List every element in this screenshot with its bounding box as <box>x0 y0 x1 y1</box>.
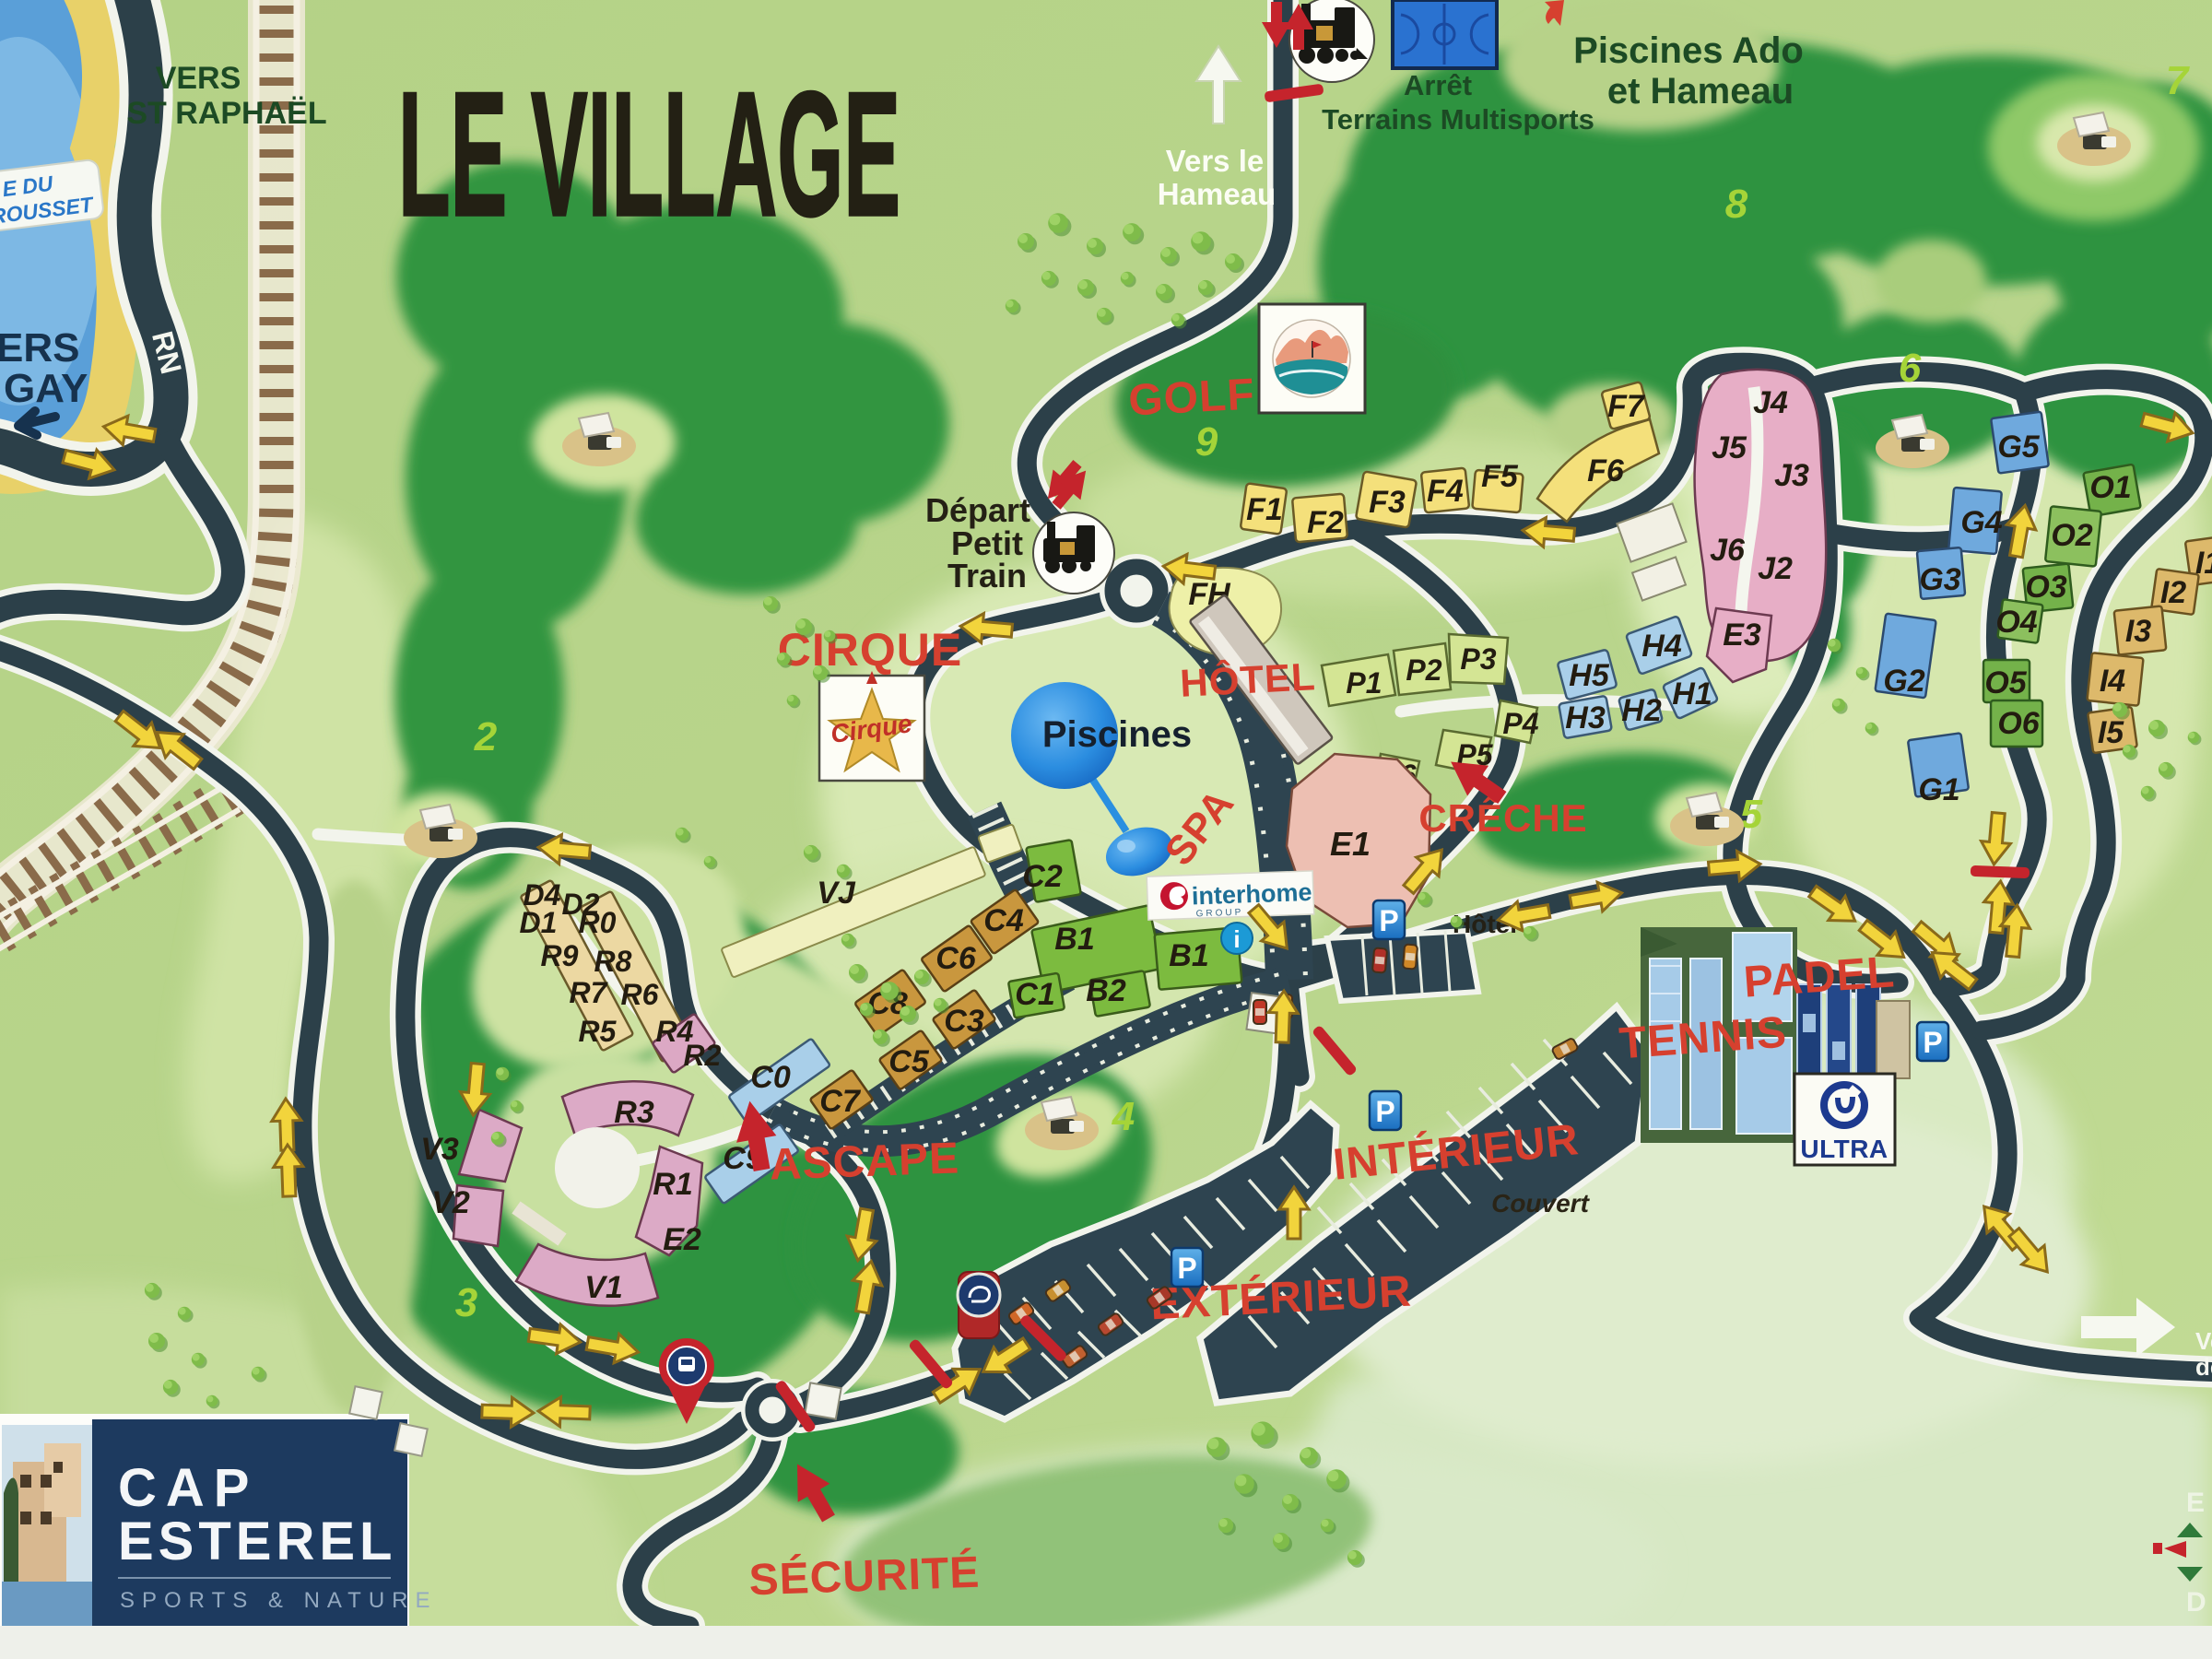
svg-text:ST RAPHAËL: ST RAPHAËL <box>126 96 326 131</box>
svg-text:O5: O5 <box>1984 665 2027 700</box>
svg-text:I5: I5 <box>2098 715 2124 750</box>
svg-text:interhome: interhome <box>1191 878 1312 911</box>
svg-text:SPORTS & NATURE: SPORTS & NATURE <box>120 1588 437 1613</box>
svg-text:Vers le: Vers le <box>1166 144 1264 178</box>
svg-text:C3: C3 <box>944 1004 984 1039</box>
svg-text:R1: R1 <box>653 1167 692 1202</box>
svg-text:P1: P1 <box>1346 666 1382 700</box>
svg-text:O6: O6 <box>1997 706 2040 741</box>
svg-text:O4: O4 <box>1995 605 2037 640</box>
svg-text:V2: V2 <box>431 1185 470 1220</box>
svg-text:G4: G4 <box>1960 505 2002 540</box>
svg-text:Piscines Ado: Piscines Ado <box>1573 30 1804 71</box>
svg-text:F2: F2 <box>1307 505 1344 540</box>
svg-text:C4: C4 <box>983 903 1024 938</box>
svg-text:O3: O3 <box>2025 570 2066 605</box>
svg-text:R9: R9 <box>541 939 579 972</box>
svg-text:ESTEREL: ESTEREL <box>118 1512 397 1571</box>
svg-text:G2: G2 <box>1883 664 1924 699</box>
svg-text:Ve: Ve <box>2195 1327 2212 1355</box>
svg-text:SÉCURITÉ: SÉCURITÉ <box>748 1547 981 1606</box>
svg-text:G5: G5 <box>1997 429 2040 465</box>
svg-text:I4: I4 <box>2100 664 2125 699</box>
svg-text:R7: R7 <box>570 976 609 1009</box>
svg-text:I3: I3 <box>2125 614 2151 649</box>
svg-text:2: 2 <box>474 714 498 759</box>
svg-text:Terrains Multisports: Terrains Multisports <box>1322 103 1594 135</box>
svg-text:VJ: VJ <box>817 876 856 911</box>
svg-text:H1: H1 <box>1672 677 1712 712</box>
svg-text:Départ: Départ <box>925 491 1030 529</box>
svg-text:H3: H3 <box>1565 700 1606 735</box>
svg-text:E2: E2 <box>663 1222 701 1257</box>
svg-text:F3: F3 <box>1369 485 1406 520</box>
svg-text:CRÊCHE: CRÊCHE <box>1418 795 1587 840</box>
svg-text:R0: R0 <box>579 906 617 939</box>
svg-text:VERS: VERS <box>156 61 241 96</box>
svg-text:J5: J5 <box>1712 430 1747 465</box>
svg-text:J3: J3 <box>1774 458 1809 493</box>
svg-text:et Hameau: et Hameau <box>1607 71 1794 112</box>
svg-text:R5: R5 <box>579 1015 618 1048</box>
svg-text:V3: V3 <box>420 1132 459 1167</box>
svg-text:R6: R6 <box>621 978 659 1011</box>
svg-text:O1: O1 <box>2089 470 2131 505</box>
svg-text:H4: H4 <box>1641 629 1682 664</box>
svg-text:Train: Train <box>947 557 1027 594</box>
svg-text:V1: V1 <box>584 1270 623 1305</box>
svg-text:GOLF: GOLF <box>1127 370 1256 425</box>
svg-text:G3: G3 <box>1919 562 1960 597</box>
svg-text:i: i <box>1233 925 1240 953</box>
svg-text:HÔTEL: HÔTEL <box>1179 653 1317 705</box>
svg-text:O2: O2 <box>2051 518 2092 553</box>
svg-text:F1: F1 <box>1246 492 1283 527</box>
svg-text:F4: F4 <box>1427 474 1464 509</box>
svg-text:Arrêt: Arrêt <box>1404 69 1472 101</box>
svg-text:P3: P3 <box>1460 642 1496 676</box>
svg-text:5: 5 <box>1740 792 1763 837</box>
svg-text:7: 7 <box>2166 58 2191 103</box>
svg-text:8: 8 <box>1725 182 1748 227</box>
svg-text:9: 9 <box>1195 419 1218 465</box>
svg-text:E: E <box>2186 1488 2205 1518</box>
svg-text:C2: C2 <box>1022 859 1063 894</box>
svg-text:ULTRA: ULTRA <box>1800 1135 1888 1163</box>
svg-text:P2: P2 <box>1406 653 1441 687</box>
svg-text:F7: F7 <box>1607 389 1646 424</box>
svg-text:D1: D1 <box>520 906 558 939</box>
svg-text:E3: E3 <box>1723 618 1761 653</box>
svg-text:C6: C6 <box>935 941 977 976</box>
svg-text:I2: I2 <box>2160 575 2186 610</box>
svg-text:D: D <box>2186 1587 2206 1618</box>
svg-text:R8: R8 <box>594 945 632 978</box>
svg-text:F5: F5 <box>1481 459 1519 494</box>
svg-text:J2: J2 <box>1758 551 1793 586</box>
svg-text:B1: B1 <box>1169 938 1208 973</box>
svg-text:B1: B1 <box>1054 922 1094 957</box>
svg-text:GAY: GAY <box>4 366 88 411</box>
svg-text:B2: B2 <box>1086 973 1126 1008</box>
svg-text:Hameau: Hameau <box>1158 177 1276 211</box>
svg-text:4: 4 <box>1112 1094 1135 1139</box>
svg-text:H2: H2 <box>1621 693 1662 728</box>
svg-text:R2: R2 <box>684 1039 722 1072</box>
svg-text:C1: C1 <box>1015 977 1054 1012</box>
svg-text:G1: G1 <box>1918 772 1959 807</box>
svg-text:C5: C5 <box>888 1044 930 1079</box>
svg-text:6: 6 <box>1899 346 1922 391</box>
svg-text:LE VILLAGE: LE VILLAGE <box>398 55 900 253</box>
svg-text:C7: C7 <box>819 1084 862 1119</box>
svg-text:de: de <box>2195 1353 2212 1381</box>
svg-text:Piscines: Piscines <box>1042 714 1192 755</box>
svg-text:H5: H5 <box>1569 658 1610 693</box>
svg-text:3: 3 <box>455 1280 477 1325</box>
svg-text:C0: C0 <box>750 1060 791 1095</box>
svg-text:CAP: CAP <box>118 1458 258 1518</box>
svg-text:GROUP: GROUP <box>1195 908 1243 920</box>
svg-text:P4: P4 <box>1502 707 1538 740</box>
svg-text:R3: R3 <box>614 1095 654 1130</box>
svg-text:ASCAPE: ASCAPE <box>769 1134 960 1189</box>
svg-text:F6: F6 <box>1587 453 1625 488</box>
svg-text:E1: E1 <box>1330 825 1371 863</box>
svg-text:J6: J6 <box>1710 533 1746 568</box>
svg-text:Couvert: Couvert <box>1491 1189 1590 1218</box>
svg-text:ERS: ERS <box>0 325 79 371</box>
svg-text:J4: J4 <box>1753 385 1788 420</box>
